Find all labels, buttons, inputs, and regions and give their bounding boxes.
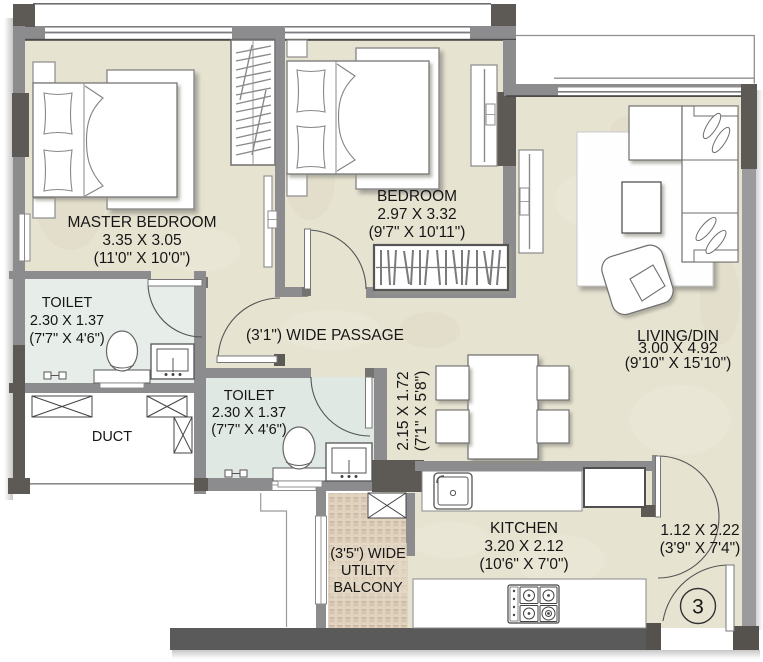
svg-text:BALCONY: BALCONY bbox=[333, 580, 403, 596]
svg-text:KITCHEN: KITCHEN bbox=[490, 520, 558, 537]
svg-text:MASTER BEDROOM: MASTER BEDROOM bbox=[68, 214, 217, 231]
svg-text:2.97 X 3.32: 2.97 X 3.32 bbox=[377, 206, 456, 223]
svg-text:3: 3 bbox=[692, 596, 704, 619]
svg-text:(9'10" X 15'10"): (9'10" X 15'10") bbox=[625, 355, 732, 372]
svg-text:UTILITY: UTILITY bbox=[341, 563, 395, 579]
svg-text:TOILET: TOILET bbox=[42, 295, 93, 311]
svg-text:(7'7" X 4'6"): (7'7" X 4'6") bbox=[29, 331, 104, 347]
svg-text:(11'0" X 10'0"): (11'0" X 10'0") bbox=[94, 250, 191, 267]
svg-text:(10'6" X 7'0"): (10'6" X 7'0") bbox=[479, 556, 568, 573]
svg-text:(9'7" X 10'11"): (9'7" X 10'11") bbox=[369, 224, 466, 241]
svg-text:(3'1") WIDE PASSAGE: (3'1") WIDE PASSAGE bbox=[246, 327, 404, 344]
svg-text:1.12 X 2.22: 1.12 X 2.22 bbox=[660, 522, 739, 539]
svg-text:2.15 X 1.72: 2.15 X 1.72 bbox=[395, 371, 412, 450]
svg-text:(7'7" X 4'6"): (7'7" X 4'6") bbox=[211, 422, 286, 438]
svg-text:3.20 X 2.12: 3.20 X 2.12 bbox=[484, 538, 563, 555]
svg-text:DUCT: DUCT bbox=[92, 429, 132, 445]
svg-text:2.30 X 1.37: 2.30 X 1.37 bbox=[212, 405, 286, 421]
svg-text:2.30 X 1.37: 2.30 X 1.37 bbox=[30, 313, 104, 329]
svg-text:TOILET: TOILET bbox=[224, 388, 275, 404]
svg-text:BEDROOM: BEDROOM bbox=[377, 188, 457, 205]
svg-text:(7'1" X 5'8"): (7'1" X 5'8") bbox=[413, 371, 430, 452]
svg-text:3.35 X 3.05: 3.35 X 3.05 bbox=[102, 232, 181, 249]
svg-text:(3'5") WIDE: (3'5") WIDE bbox=[330, 546, 406, 562]
svg-text:(3'9" X 7'4"): (3'9" X 7'4") bbox=[660, 540, 741, 557]
